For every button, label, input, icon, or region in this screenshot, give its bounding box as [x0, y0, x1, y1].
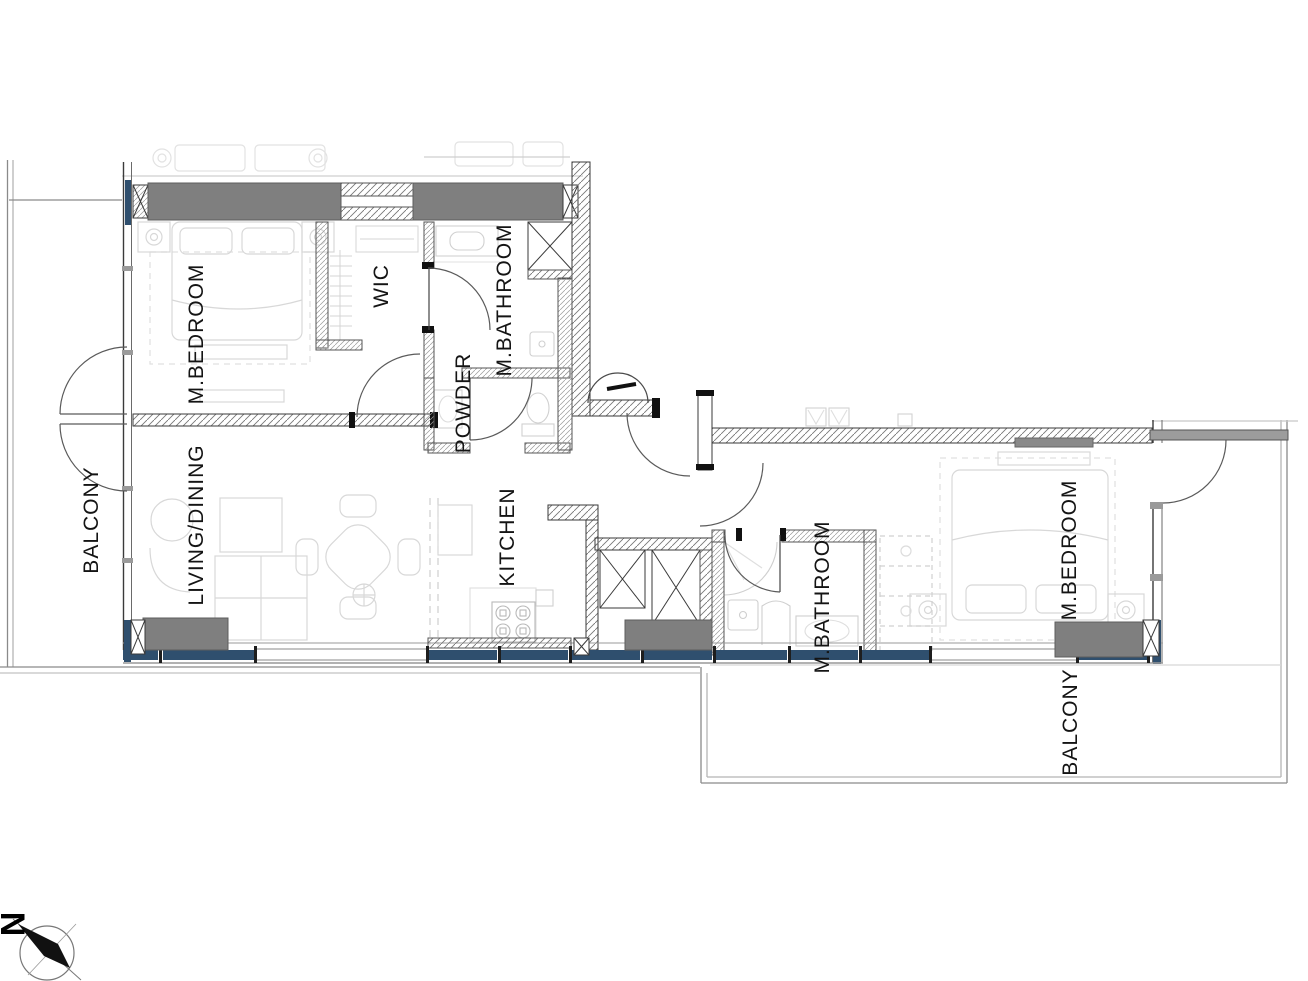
- room-label-kitchen: KITCHEN: [496, 487, 520, 586]
- kitchen-fixtures: [430, 498, 553, 645]
- room-label-balcony-left: BALCONY: [80, 466, 104, 573]
- room-label-m-bedroom-left: M.BEDROOM: [185, 264, 209, 405]
- adjacent-unit-faint: [122, 142, 583, 176]
- floor-plan-canvas: M.BEDROOM WIC M.BATHROOM POWDER BALCONY …: [0, 0, 1308, 981]
- room-label-living-dining: LIVING/DINING: [185, 444, 209, 605]
- room-label-m-bathroom-right: M.BATHROOM: [811, 520, 835, 673]
- walls: [122, 162, 1288, 663]
- north-label: N: [0, 912, 34, 937]
- room-label-powder: POWDER: [452, 353, 476, 454]
- room-label-m-bedroom-right: M.BEDROOM: [1058, 480, 1082, 621]
- window-left-top: [125, 180, 131, 225]
- room-label-balcony-bottom: BALCONY: [1059, 668, 1083, 775]
- room-label-wic: WIC: [370, 264, 394, 308]
- corridor-appliances: [806, 408, 912, 426]
- bathroom-right-fixtures: [724, 542, 858, 646]
- room-label-m-bathroom-top: M.BATHROOM: [493, 223, 517, 376]
- bedroom-left-furniture: [138, 222, 334, 402]
